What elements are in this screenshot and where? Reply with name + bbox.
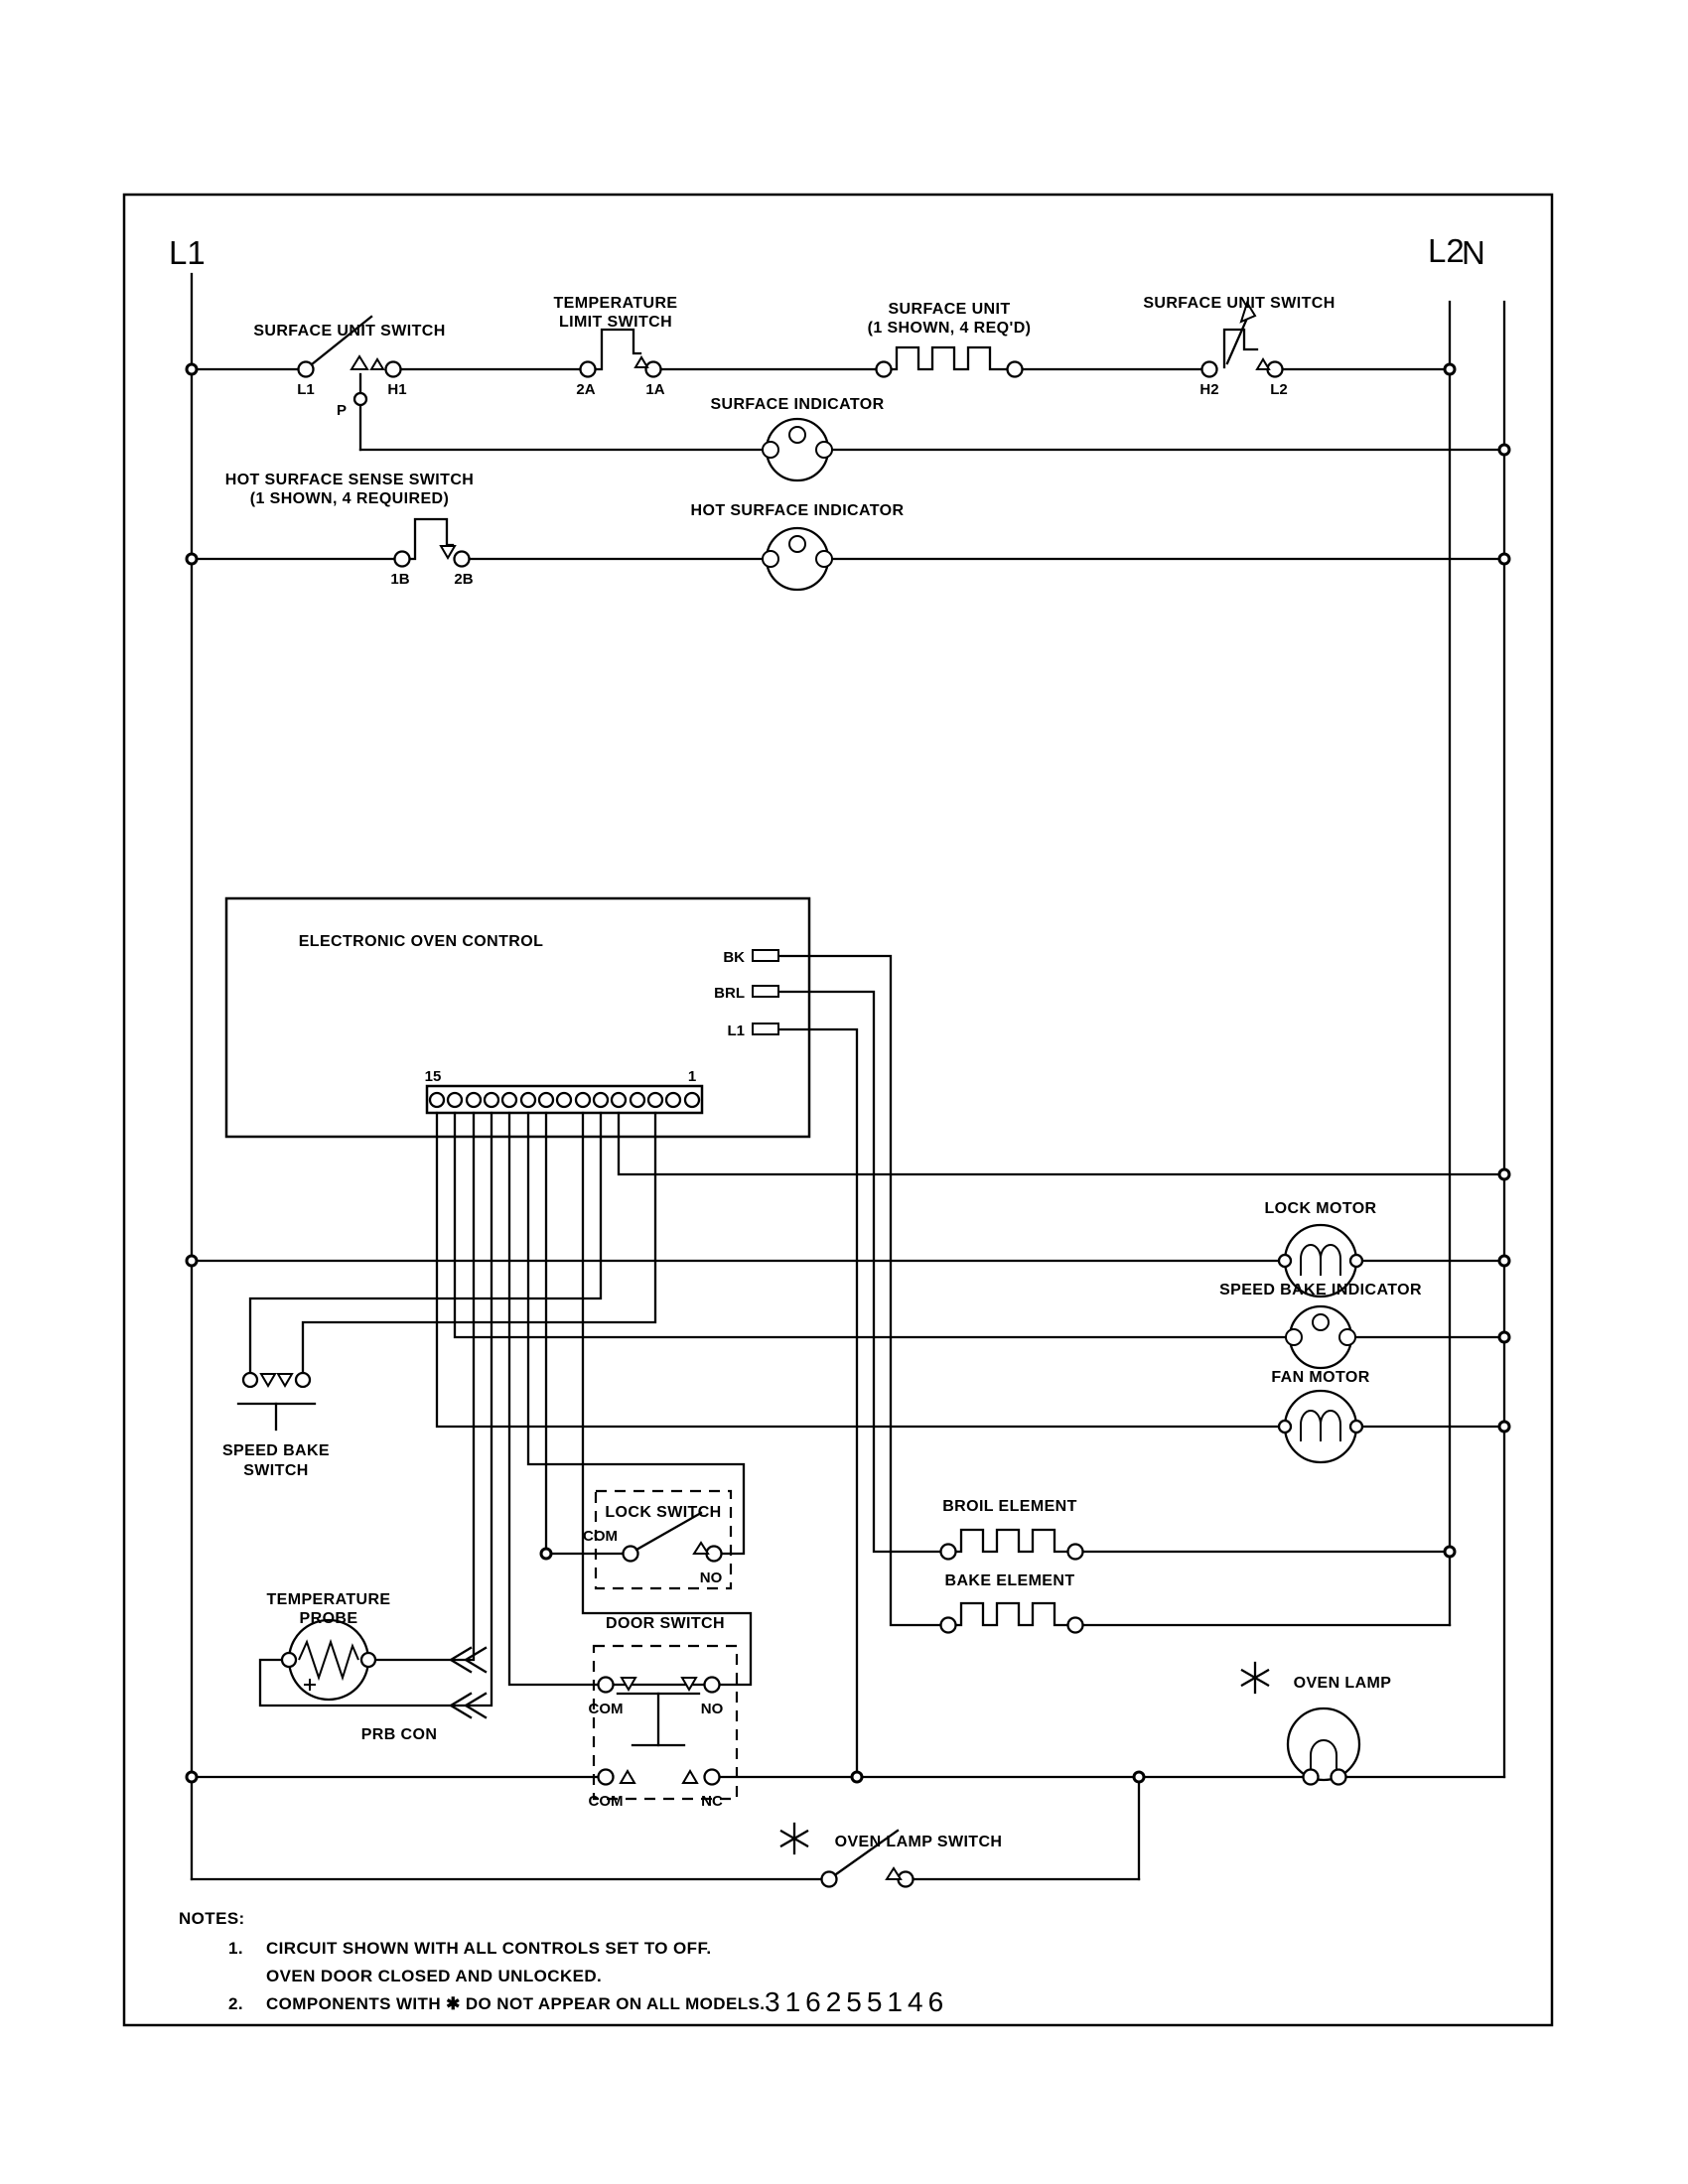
eoc-pad-bk: BK — [723, 949, 745, 966]
oven-lamp: OVEN LAMP — [1242, 1663, 1391, 1785]
temperature-limit-switch: TEMPERATURE LIMIT SWITCH 2A 1A — [554, 295, 678, 398]
eoc-title: ELECTRONIC OVEN CONTROL — [299, 933, 544, 950]
lock-switch: LOCK SWITCH COM NO — [583, 1491, 731, 1588]
electronic-oven-control: ELECTRONIC OVEN CONTROL BK BRL L1 15 1 — [226, 898, 809, 1137]
svg-text:OVEN LAMP: OVEN LAMP — [1294, 1675, 1392, 1692]
temperature-probe: TEMPERATURE PROBE PRB CON — [267, 1591, 487, 1743]
svg-text:(1 SHOWN, 4 REQ'D): (1 SHOWN, 4 REQ'D) — [868, 320, 1032, 337]
asterisk-icon — [781, 1824, 807, 1853]
surface-unit-element: SURFACE UNIT (1 SHOWN, 4 REQ'D) — [868, 301, 1032, 377]
svg-text:SURFACE UNIT: SURFACE UNIT — [888, 301, 1010, 318]
notes-heading: NOTES: — [179, 1909, 245, 1928]
speed-bake-switch: SPEED BAKE SWITCH — [222, 1373, 330, 1479]
svg-text:1B: 1B — [390, 571, 409, 588]
svg-text:L1: L1 — [297, 381, 315, 398]
svg-text:2.: 2. — [228, 1994, 243, 2013]
svg-text:H2: H2 — [1199, 381, 1218, 398]
wiring-diagram-page: L1 L2 N — [0, 0, 1688, 2184]
surface-unit-switch-right: SURFACE UNIT SWITCH H2 L2 — [1143, 295, 1335, 398]
prb-con-label: PRB CON — [361, 1726, 438, 1743]
svg-text:OVEN LAMP SWITCH: OVEN LAMP SWITCH — [835, 1834, 1003, 1850]
svg-text:TEMPERATURE: TEMPERATURE — [267, 1591, 391, 1608]
svg-text:BROIL ELEMENT: BROIL ELEMENT — [942, 1498, 1077, 1515]
surface-indicator: SURFACE INDICATOR — [710, 396, 884, 480]
svg-text:15: 15 — [425, 1068, 442, 1085]
surface-unit-switch-left: SURFACE UNIT SWITCH L1 P H1 — [253, 323, 445, 419]
junction-dots — [187, 364, 1509, 1782]
svg-text:HOT SURFACE SENSE SWITCH: HOT SURFACE SENSE SWITCH — [225, 472, 475, 488]
asterisk-icon — [1242, 1663, 1268, 1693]
rail-label-l1: L1 — [169, 234, 206, 271]
rail-label-l2: L2 — [1428, 232, 1465, 269]
svg-text:FAN MOTOR: FAN MOTOR — [1271, 1369, 1369, 1386]
svg-text:HOT SURFACE INDICATOR: HOT SURFACE INDICATOR — [691, 502, 905, 519]
svg-text:1: 1 — [688, 1068, 696, 1085]
svg-text:COMPONENTS WITH ✱ DO NOT APP: COMPONENTS WITH ✱ DO NOT APPEAR ON ALL M… — [266, 1994, 765, 2013]
speed-bake-indicator: SPEED BAKE INDICATOR — [1219, 1282, 1422, 1368]
surface-unit-switch-right-label: SURFACE UNIT SWITCH — [1143, 295, 1335, 312]
svg-text:PROBE: PROBE — [300, 1610, 358, 1627]
svg-text:H1: H1 — [387, 381, 406, 398]
svg-text:SWITCH: SWITCH — [243, 1462, 309, 1479]
eoc-pad-l1: L1 — [727, 1023, 745, 1039]
svg-text:SURFACE INDICATOR: SURFACE INDICATOR — [710, 396, 884, 413]
notes: NOTES: 1. CIRCUIT SHOWN WITH ALL CONTROL… — [179, 1909, 948, 2017]
svg-text:TEMPERATURE: TEMPERATURE — [554, 295, 678, 312]
svg-text:COM: COM — [589, 1701, 624, 1717]
door-switch-label: DOOR SWITCH — [606, 1615, 725, 1632]
svg-text:LIMIT SWITCH: LIMIT SWITCH — [559, 314, 672, 331]
hot-surface-sense-switch: HOT SURFACE SENSE SWITCH (1 SHOWN, 4 REQ… — [225, 472, 475, 588]
svg-text:COM: COM — [589, 1793, 624, 1810]
oven-lamp-switch: OVEN LAMP SWITCH — [781, 1824, 1002, 1887]
door-switch: DOOR SWITCH COM NO COM NC — [589, 1615, 738, 1810]
svg-text:LOCK MOTOR: LOCK MOTOR — [1264, 1200, 1376, 1217]
svg-text:BAKE ELEMENT: BAKE ELEMENT — [944, 1572, 1074, 1589]
probe-connector-icon — [451, 1648, 486, 1717]
svg-text:P: P — [337, 402, 347, 419]
svg-text:2B: 2B — [454, 571, 473, 588]
lock-switch-label: LOCK SWITCH — [605, 1504, 721, 1521]
svg-text:OVEN DOOR CLOSED AND UNLOCKED.: OVEN DOOR CLOSED AND UNLOCKED. — [266, 1967, 602, 1985]
svg-text:(1 SHOWN, 4 REQUIRED): (1 SHOWN, 4 REQUIRED) — [250, 490, 449, 507]
hot-surface-indicator: HOT SURFACE INDICATOR — [691, 502, 905, 590]
svg-text:SPEED BAKE INDICATOR: SPEED BAKE INDICATOR — [1219, 1282, 1422, 1298]
svg-text:NO: NO — [701, 1701, 724, 1717]
fan-motor: FAN MOTOR — [1271, 1369, 1369, 1462]
svg-text:NC: NC — [701, 1793, 723, 1810]
svg-text:CIRCUIT SHOWN WITH ALL CONTROL: CIRCUIT SHOWN WITH ALL CONTROLS SET TO O… — [266, 1939, 711, 1958]
svg-text:COM: COM — [583, 1528, 618, 1545]
svg-text:SPEED BAKE: SPEED BAKE — [222, 1442, 330, 1459]
svg-text:2A: 2A — [576, 381, 595, 398]
part-number: 316255146 — [765, 1986, 948, 2017]
svg-text:1A: 1A — [645, 381, 664, 398]
surface-unit-switch-left-label: SURFACE UNIT SWITCH — [253, 323, 445, 340]
eoc-terminal-strip: 15 1 — [425, 1068, 702, 1113]
svg-text:L2: L2 — [1270, 381, 1288, 398]
svg-text:NO: NO — [700, 1570, 723, 1586]
rail-label-n: N — [1462, 234, 1485, 271]
svg-text:1.: 1. — [228, 1939, 243, 1958]
wiring-diagram-svg: L1 L2 N — [0, 0, 1688, 2184]
eoc-pad-brl: BRL — [714, 985, 745, 1002]
